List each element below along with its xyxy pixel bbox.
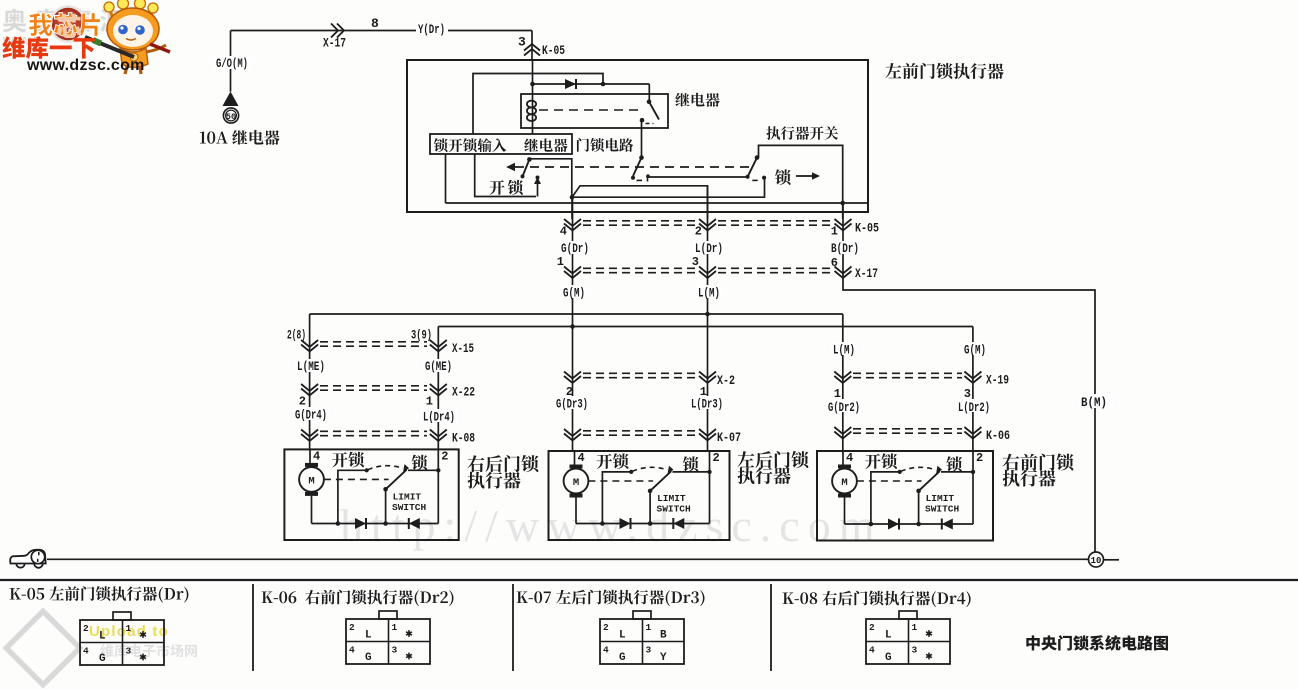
svg-text:X-19: X-19 [986, 374, 1009, 388]
svg-text:G: G [365, 652, 372, 664]
svg-text:L(Dr2): L(Dr2) [958, 401, 990, 415]
svg-text:L: L [619, 630, 626, 642]
svg-text:G(M): G(M) [563, 287, 585, 301]
svg-text:3: 3 [392, 645, 398, 656]
svg-text:4: 4 [83, 646, 89, 657]
svg-text:3(9): 3(9) [411, 329, 432, 343]
svg-text:X-17: X-17 [855, 267, 878, 281]
svg-text:www.dzsc.com: www.dzsc.com [26, 57, 145, 74]
svg-text:L: L [365, 630, 372, 642]
svg-text:1: 1 [126, 623, 132, 634]
svg-text:X-17: X-17 [323, 37, 346, 51]
svg-text:L(Dr3): L(Dr3) [691, 398, 723, 412]
svg-text:L: L [885, 630, 892, 642]
svg-text:4: 4 [349, 645, 355, 656]
svg-text:2: 2 [603, 622, 609, 633]
svg-text:K-05: K-05 [542, 44, 565, 58]
svg-text:2: 2 [441, 449, 448, 463]
svg-text:2: 2 [869, 622, 875, 633]
svg-text:50: 50 [226, 112, 236, 122]
svg-text:L(Dr): L(Dr) [695, 242, 723, 256]
svg-text:3: 3 [692, 255, 699, 269]
svg-text:L(M): L(M) [698, 287, 720, 301]
svg-text:4: 4 [603, 645, 609, 656]
svg-text:2: 2 [695, 225, 702, 239]
svg-text:4: 4 [560, 225, 567, 239]
svg-text:1: 1 [557, 255, 564, 269]
svg-text:1: 1 [646, 622, 652, 633]
svg-text:3: 3 [518, 35, 526, 50]
svg-text:G(Dr3): G(Dr3) [556, 398, 588, 412]
svg-text:1: 1 [912, 622, 918, 633]
svg-text:3: 3 [912, 645, 918, 656]
svg-text:K-05: K-05 [855, 222, 879, 236]
svg-text:2: 2 [83, 623, 89, 634]
svg-text:L(ME): L(ME) [297, 360, 325, 374]
svg-text:1: 1 [426, 395, 433, 409]
svg-text:M: M [573, 477, 579, 489]
svg-text:B(Dr): B(Dr) [831, 242, 859, 256]
svg-text:1: 1 [392, 622, 398, 633]
svg-text:G(Dr4): G(Dr4) [295, 409, 327, 423]
svg-text:1: 1 [831, 225, 838, 239]
svg-text:M: M [308, 475, 314, 487]
svg-text:L(M): L(M) [833, 344, 855, 358]
svg-text:3: 3 [964, 387, 971, 401]
svg-text:Y: Y [660, 652, 667, 664]
svg-text:2(8): 2(8) [287, 329, 306, 343]
svg-text:3: 3 [126, 646, 132, 657]
svg-text:G(M): G(M) [964, 344, 986, 358]
svg-text:4: 4 [313, 449, 320, 463]
svg-text:10: 10 [1091, 556, 1102, 566]
svg-text:3: 3 [646, 645, 652, 656]
svg-text:2: 2 [299, 395, 306, 409]
svg-text:4: 4 [846, 451, 853, 465]
svg-text:G: G [885, 652, 892, 664]
svg-text:B: B [660, 630, 667, 642]
svg-text:4: 4 [578, 451, 585, 465]
svg-text:G(Dr2): G(Dr2) [828, 401, 860, 415]
svg-text:SWITCH: SWITCH [925, 504, 960, 515]
svg-text:Y(Dr): Y(Dr) [418, 22, 445, 37]
svg-text:LIMIT: LIMIT [393, 491, 422, 502]
svg-text:SWITCH: SWITCH [392, 502, 427, 513]
svg-text:G(Dr): G(Dr) [561, 242, 589, 256]
svg-text:K-06: K-06 [986, 429, 1010, 443]
svg-text:K-08: K-08 [452, 432, 475, 446]
svg-text:X-22: X-22 [452, 386, 475, 400]
svg-text:8: 8 [371, 16, 379, 31]
svg-text:G/O(M): G/O(M) [216, 57, 248, 71]
svg-text:SWITCH: SWITCH [657, 504, 692, 515]
svg-text:2: 2 [349, 622, 355, 633]
svg-text:L: L [99, 631, 106, 643]
svg-text:L(Dr4): L(Dr4) [423, 411, 455, 425]
svg-text:K-07: K-07 [717, 431, 741, 445]
svg-text:G(ME): G(ME) [425, 360, 452, 374]
svg-text:B(M): B(M) [1081, 396, 1107, 410]
svg-text:M: M [841, 477, 847, 489]
svg-text:4: 4 [869, 645, 875, 656]
svg-text:G: G [99, 653, 106, 665]
svg-text:2: 2 [976, 451, 983, 465]
svg-text:LIMIT: LIMIT [926, 493, 955, 504]
svg-text:G: G [619, 652, 626, 664]
svg-text:X-2: X-2 [717, 374, 735, 388]
svg-text:2: 2 [713, 451, 720, 465]
svg-text:X-15: X-15 [452, 342, 474, 356]
svg-text:LIMIT: LIMIT [657, 493, 686, 504]
svg-text:1: 1 [834, 387, 841, 401]
